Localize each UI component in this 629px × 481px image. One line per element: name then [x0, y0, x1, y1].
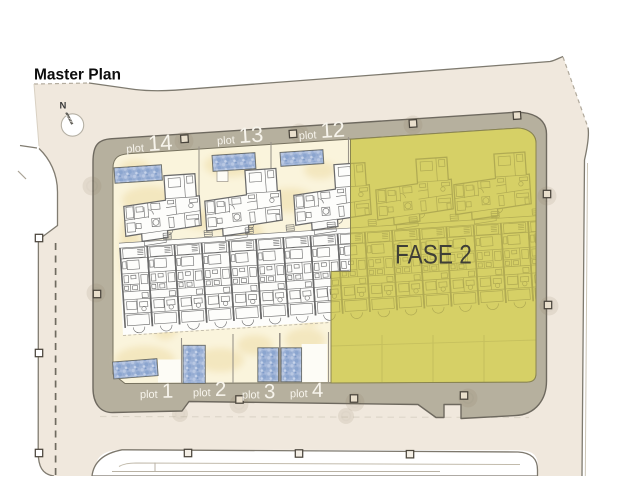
svg-text:1: 1 [162, 380, 174, 403]
svg-text:FASE 2: FASE 2 [395, 240, 472, 270]
svg-text:2: 2 [215, 378, 227, 401]
svg-text:plot: plot [140, 389, 158, 401]
svg-text:plot: plot [298, 129, 316, 142]
svg-text:plot: plot [217, 134, 235, 147]
svg-text:plot: plot [242, 389, 260, 401]
svg-text:N: N [60, 101, 67, 112]
svg-text:12: 12 [320, 116, 346, 143]
svg-text:Master Plan: Master Plan [34, 67, 121, 84]
svg-text:13: 13 [238, 122, 264, 149]
svg-text:plot: plot [193, 387, 211, 399]
svg-text:plot: plot [126, 142, 144, 155]
svg-text:4: 4 [312, 379, 324, 402]
svg-text:3: 3 [264, 380, 276, 403]
svg-text:plot: plot [290, 388, 308, 400]
svg-text:14: 14 [147, 130, 173, 157]
